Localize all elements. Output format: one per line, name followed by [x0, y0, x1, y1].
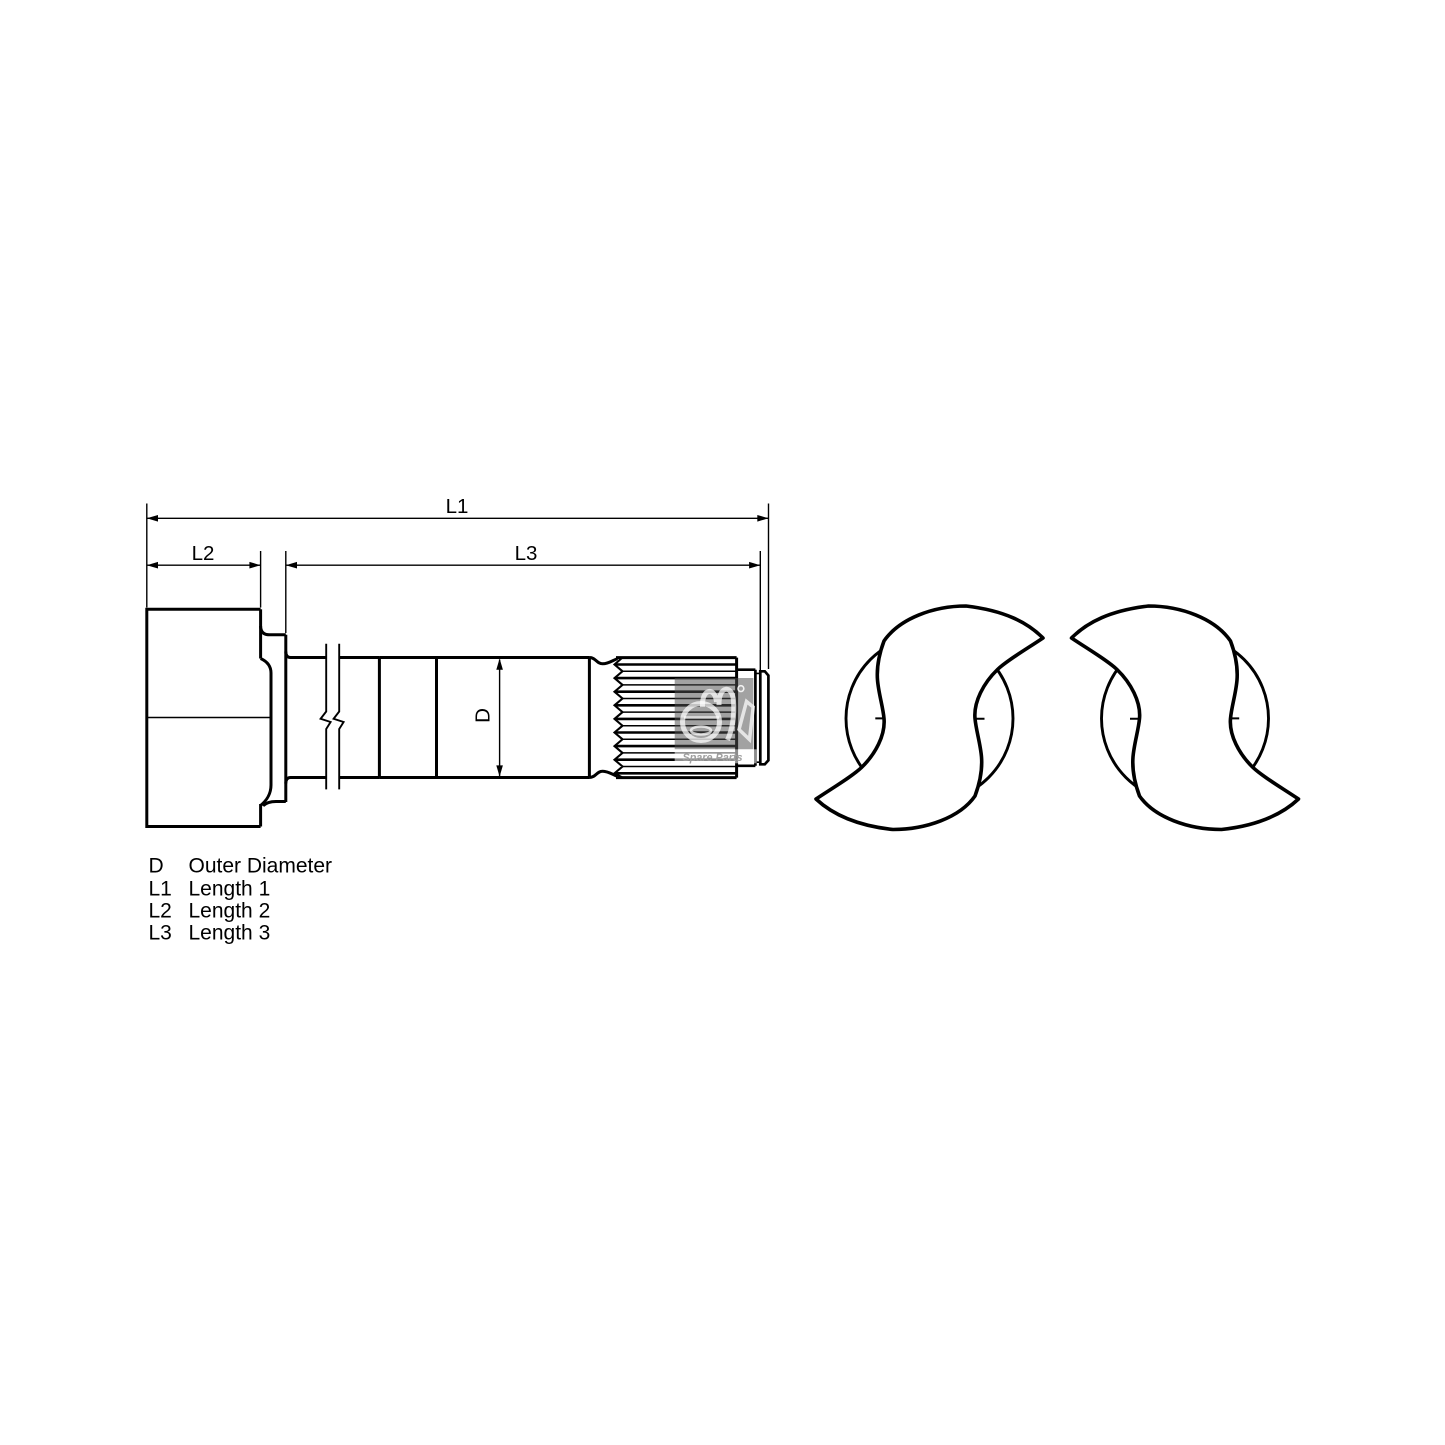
svg-text:Length 1: Length 1 — [189, 878, 271, 901]
svg-text:Length 3: Length 3 — [189, 922, 271, 945]
svg-text:L1: L1 — [446, 495, 469, 518]
svg-text:L1: L1 — [149, 878, 172, 901]
svg-text:Spare Parts: Spare Parts — [683, 752, 743, 764]
svg-text:L3: L3 — [515, 542, 538, 565]
svg-text:Outer Diameter: Outer Diameter — [189, 855, 333, 878]
svg-text:L2: L2 — [149, 900, 172, 923]
svg-text:L3: L3 — [149, 922, 172, 945]
svg-text:L2: L2 — [192, 542, 215, 565]
svg-text:D: D — [472, 708, 495, 723]
svg-text:Length 2: Length 2 — [189, 900, 271, 923]
svg-text:D: D — [149, 855, 164, 878]
